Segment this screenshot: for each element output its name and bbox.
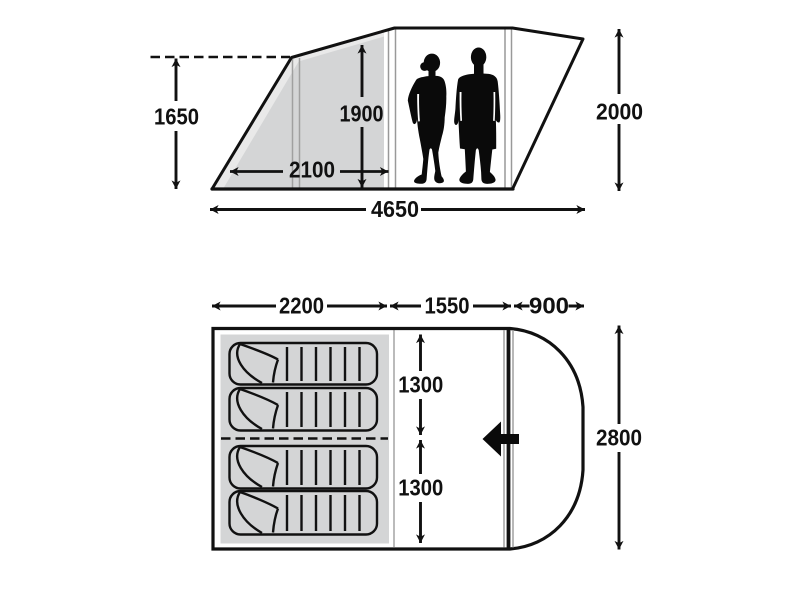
svg-text:2200: 2200	[279, 293, 324, 319]
svg-text:1550: 1550	[425, 293, 470, 319]
svg-text:900: 900	[529, 293, 569, 319]
svg-text:1900: 1900	[340, 101, 384, 127]
svg-text:1650: 1650	[154, 104, 199, 130]
svg-text:1300: 1300	[398, 475, 443, 501]
svg-text:2000: 2000	[596, 99, 643, 125]
svg-text:2800: 2800	[596, 425, 642, 451]
svg-text:4650: 4650	[371, 196, 419, 222]
svg-text:1300: 1300	[398, 372, 443, 398]
svg-text:2100: 2100	[289, 157, 335, 183]
